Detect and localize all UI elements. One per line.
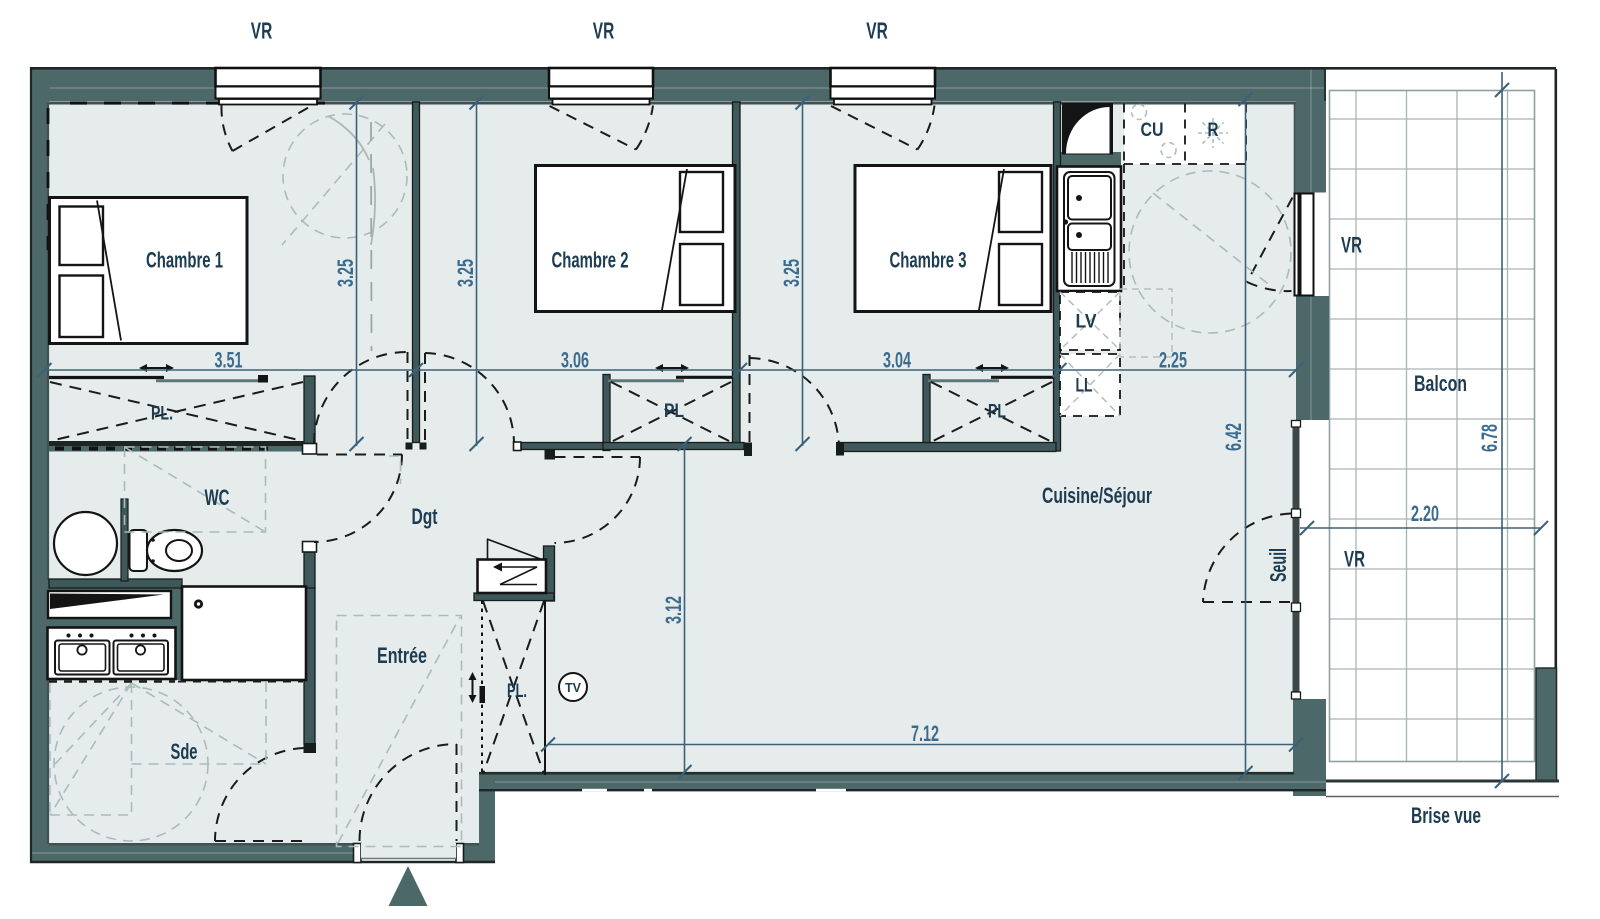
svg-text:2.20: 2.20	[1411, 501, 1439, 526]
svg-text:PL: PL	[664, 401, 684, 422]
svg-text:Chambre 2: Chambre 2	[552, 248, 629, 273]
svg-text:VR: VR	[866, 18, 888, 44]
svg-text:Chambre 3: Chambre 3	[890, 248, 967, 273]
svg-text:Seuil: Seuil	[1265, 548, 1291, 582]
svg-text:7.12: 7.12	[911, 721, 939, 746]
svg-text:2.25: 2.25	[1159, 348, 1187, 373]
svg-text:LL: LL	[1076, 376, 1093, 397]
svg-text:Chambre 1: Chambre 1	[146, 248, 223, 273]
svg-text:TV: TV	[565, 681, 582, 695]
svg-text:VR: VR	[593, 18, 615, 44]
svg-text:3.25: 3.25	[453, 259, 478, 287]
svg-text:LV: LV	[1076, 312, 1097, 333]
svg-text:3.06: 3.06	[561, 348, 589, 373]
svg-text:Dgt: Dgt	[412, 504, 438, 529]
svg-text:Brise vue: Brise vue	[1411, 803, 1481, 828]
svg-text:6.42: 6.42	[1221, 423, 1246, 451]
svg-text:PL.: PL.	[507, 681, 527, 702]
svg-text:6.78: 6.78	[1477, 424, 1502, 452]
svg-text:3.04: 3.04	[883, 348, 911, 373]
svg-text:WC: WC	[205, 485, 230, 510]
svg-text:3.51: 3.51	[215, 348, 243, 373]
svg-text:CU: CU	[1141, 120, 1164, 141]
svg-text:VR: VR	[1341, 233, 1362, 258]
svg-text:Cuisine/Séjour: Cuisine/Séjour	[1042, 483, 1152, 508]
svg-text:R: R	[1208, 120, 1219, 141]
svg-text:Sde: Sde	[171, 739, 198, 764]
svg-text:PL.: PL.	[151, 404, 173, 425]
svg-text:VR: VR	[1344, 547, 1365, 572]
svg-text:PL: PL	[988, 402, 1006, 423]
svg-text:Balcon: Balcon	[1414, 371, 1467, 396]
svg-text:3.25: 3.25	[779, 259, 804, 287]
svg-text:3.12: 3.12	[661, 596, 686, 624]
svg-text:VR: VR	[251, 18, 273, 44]
svg-text:Entrée: Entrée	[377, 643, 427, 668]
svg-text:3.25: 3.25	[333, 259, 358, 287]
